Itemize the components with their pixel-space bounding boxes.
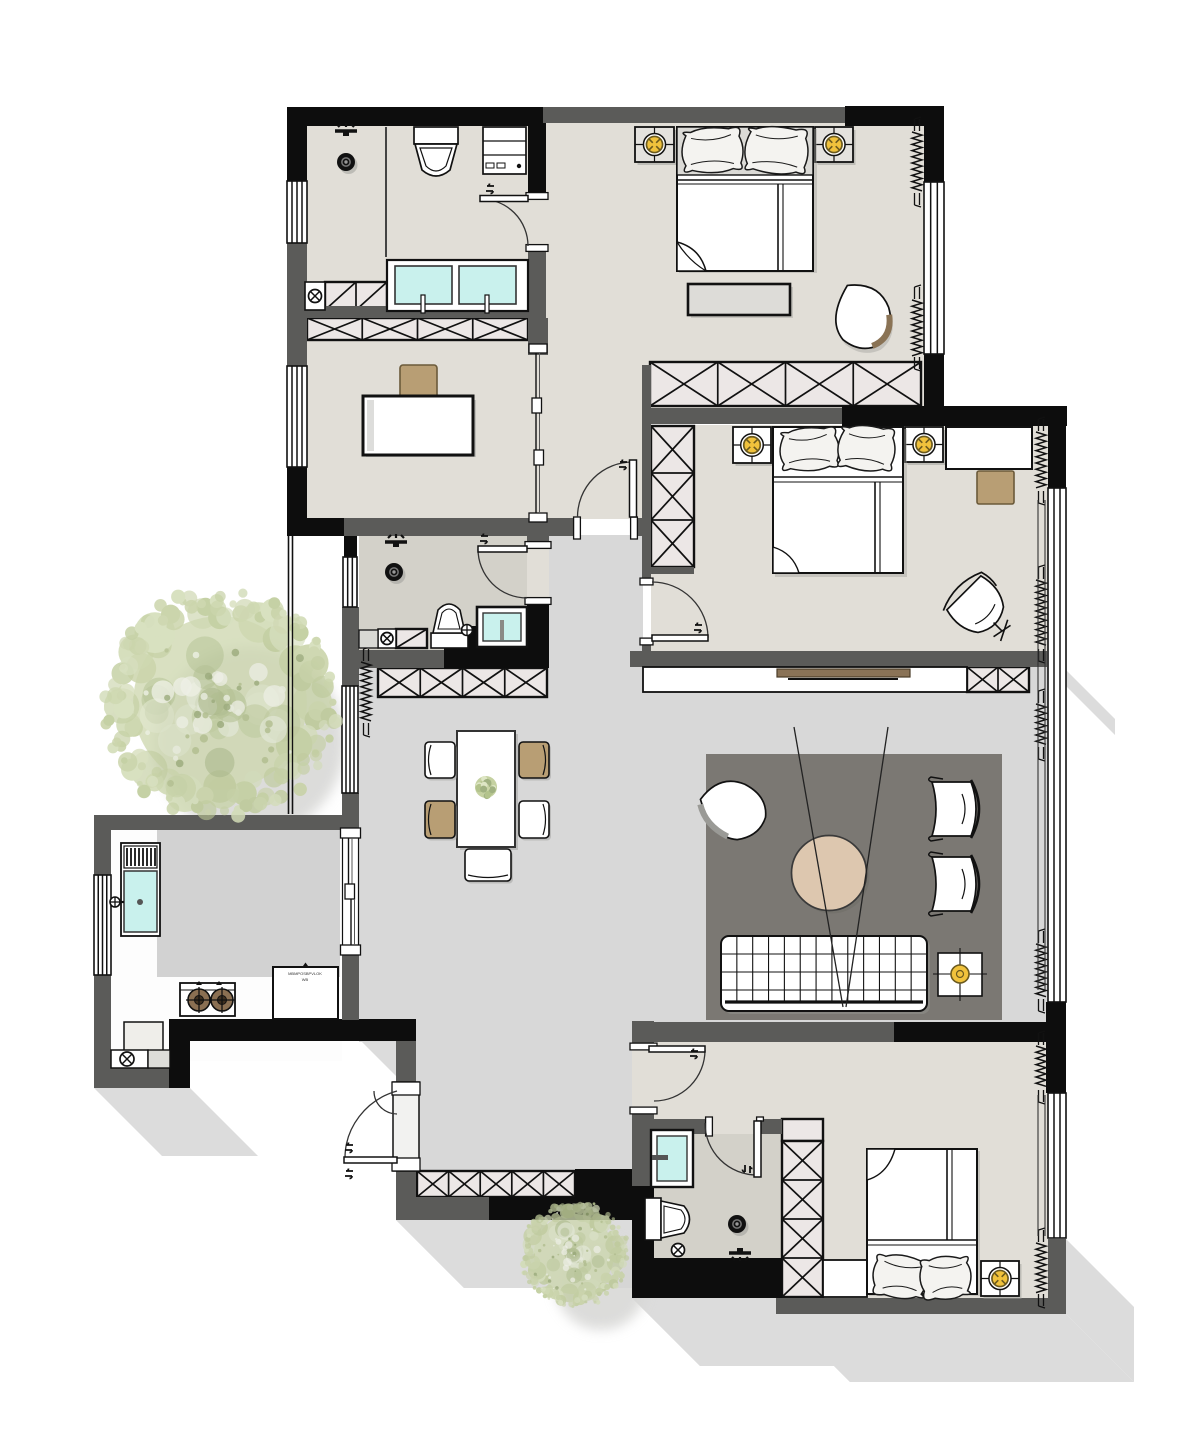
svg-text:WB: WB bbox=[302, 977, 309, 982]
svg-text:MBMPOSBPVLOK: MBMPOSBPVLOK bbox=[288, 971, 322, 976]
